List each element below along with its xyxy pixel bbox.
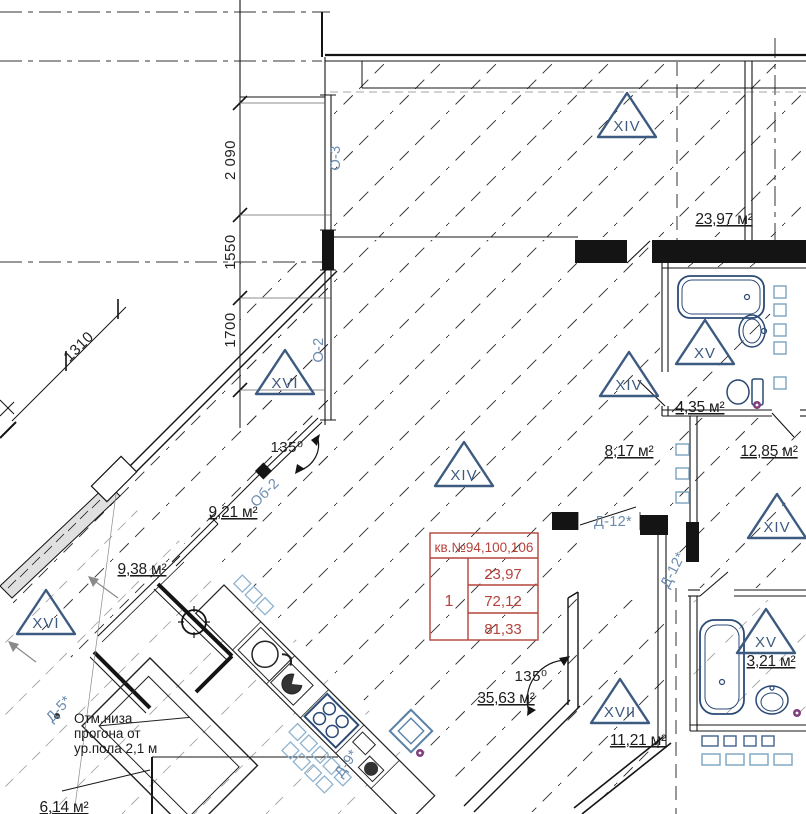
marker-label-xv-top: XV: [694, 345, 716, 362]
window-label-o2: О-2: [311, 337, 327, 362]
area-label-room-938: 9,38 м²: [118, 561, 167, 578]
floor-plan-canvas: 2 090 1550 1700 1310 135⁰ 135⁰ XIV XIV X…: [0, 0, 806, 814]
marker-label-xiv-top: XIV: [613, 118, 640, 135]
dim-1550: 1550: [222, 234, 239, 269]
window-label-o3: О-3: [328, 145, 344, 170]
marker-label-xiv-mid-right: XIV: [615, 377, 642, 394]
note-line-2: прогона от: [74, 726, 141, 741]
area-label-partial: 6,14 м²: [40, 799, 89, 814]
door-label-d12-b: Д-12*: [658, 550, 689, 591]
marker-label-xvii: XVII: [604, 704, 636, 721]
marker-label-xv-bottom: XV: [755, 634, 777, 651]
area-label-hall: 8,17 м²: [605, 443, 654, 460]
apt-table-row2: 72,12: [484, 593, 522, 610]
projection-hatch: [0, 63, 806, 814]
floor-plan-svg: 2 090 1550 1700 1310 135⁰ 135⁰ XIV XIV X…: [0, 0, 806, 814]
apt-table-row3: 81,33: [484, 621, 522, 638]
area-label-bath-bottom: 3,21 м²: [747, 653, 796, 670]
apt-table-unit: 1: [445, 593, 454, 610]
note-line-1: Отм.низа: [74, 711, 133, 726]
bathtub-top-icon: [678, 276, 764, 318]
marker-label-xvi-lower: XVI: [32, 615, 59, 632]
area-label-bath-top: 4,35 м²: [676, 399, 725, 416]
apt-table-header: кв.№94,100,106: [435, 540, 534, 555]
area-label-room-right: 12,85 м²: [740, 443, 797, 460]
area-label-room-1121: 11,21 м²: [610, 732, 666, 749]
dim-1310: 1310: [60, 328, 97, 365]
area-label-room-921: 9,21 м²: [209, 504, 258, 521]
angle-label-lower: 135⁰: [514, 668, 547, 685]
note-line-3: ур.пола 2,1 м: [74, 741, 157, 756]
dim-1700: 1700: [222, 312, 239, 347]
angle-label-upper: 135⁰: [270, 439, 303, 456]
area-label-room-top: 23,97 м²: [695, 211, 752, 228]
apt-table-row1: 23,97: [484, 566, 522, 583]
area-label-room-main: 35,63 м²: [477, 690, 534, 707]
marker-label-xiv-far-right: XIV: [763, 519, 790, 536]
marker-label-xvi-upper: XVI: [271, 375, 298, 392]
marker-label-xiv-center: XIV: [450, 467, 477, 484]
dim-2090: 2 090: [222, 140, 239, 180]
door-label-d12-a: Д-12*: [594, 514, 632, 530]
